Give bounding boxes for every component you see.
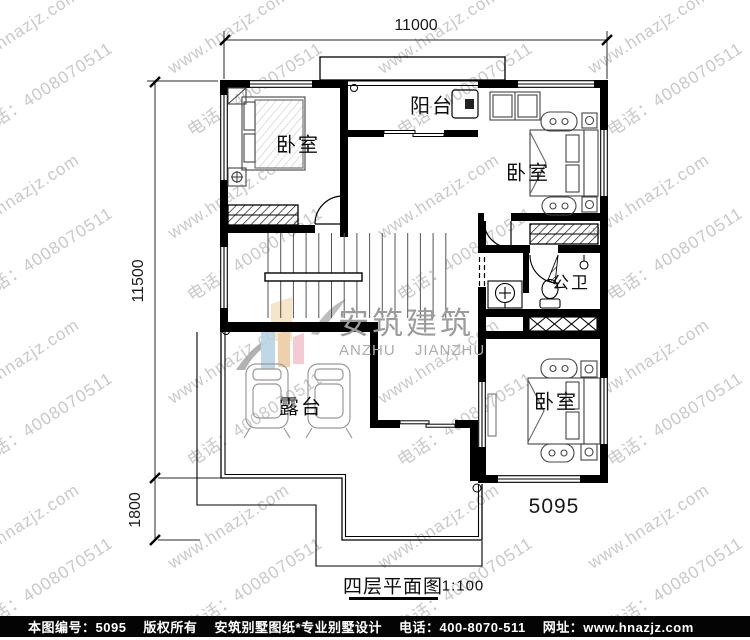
footer-phone: 电话：400-8070-511	[399, 617, 526, 636]
dimension-top: 11000	[394, 17, 437, 35]
drawing-title: 四层平面图	[343, 572, 443, 599]
footer-company: 安筑别墅图纸*专业别墅设计	[214, 617, 382, 636]
label-layer: 11000 11500 1800 卧室 卧室 卧室 阳台 公卫 露台 5095 …	[0, 0, 750, 640]
dimension-left: 11500	[130, 259, 148, 302]
footer-sheet-number: 本图编号：5095	[28, 617, 126, 636]
footer-bar: 本图编号：5095 版权所有 安筑别墅图纸*专业别墅设计 电话：400-8070…	[0, 616, 750, 637]
dimension-left-lower: 1800	[127, 492, 145, 528]
room-label-bedroom-topright: 卧室	[506, 157, 550, 186]
room-label-bathroom: 公卫	[552, 269, 590, 294]
room-label-bedroom-topleft: 卧室	[276, 129, 320, 158]
room-label-balcony: 阳台	[410, 90, 454, 119]
company-logo-en: ANZHU JIANZHU	[339, 342, 485, 359]
drawing-scale: 1:100	[442, 578, 485, 595]
room-label-bedroom-bottomright: 卧室	[534, 386, 578, 415]
title-underline	[349, 597, 438, 600]
floor-plan-sheet: www.hnazjz.com电话：4008070511www.hnazjz.co…	[0, 0, 750, 640]
company-logo-cn: 安筑建筑	[338, 298, 474, 343]
plan-number: 5095	[529, 495, 580, 519]
room-label-terrace: 露台	[279, 391, 323, 420]
footer-website: 网址：www.hnazjz.com	[543, 617, 694, 636]
footer-copyright: 版权所有	[143, 617, 197, 636]
